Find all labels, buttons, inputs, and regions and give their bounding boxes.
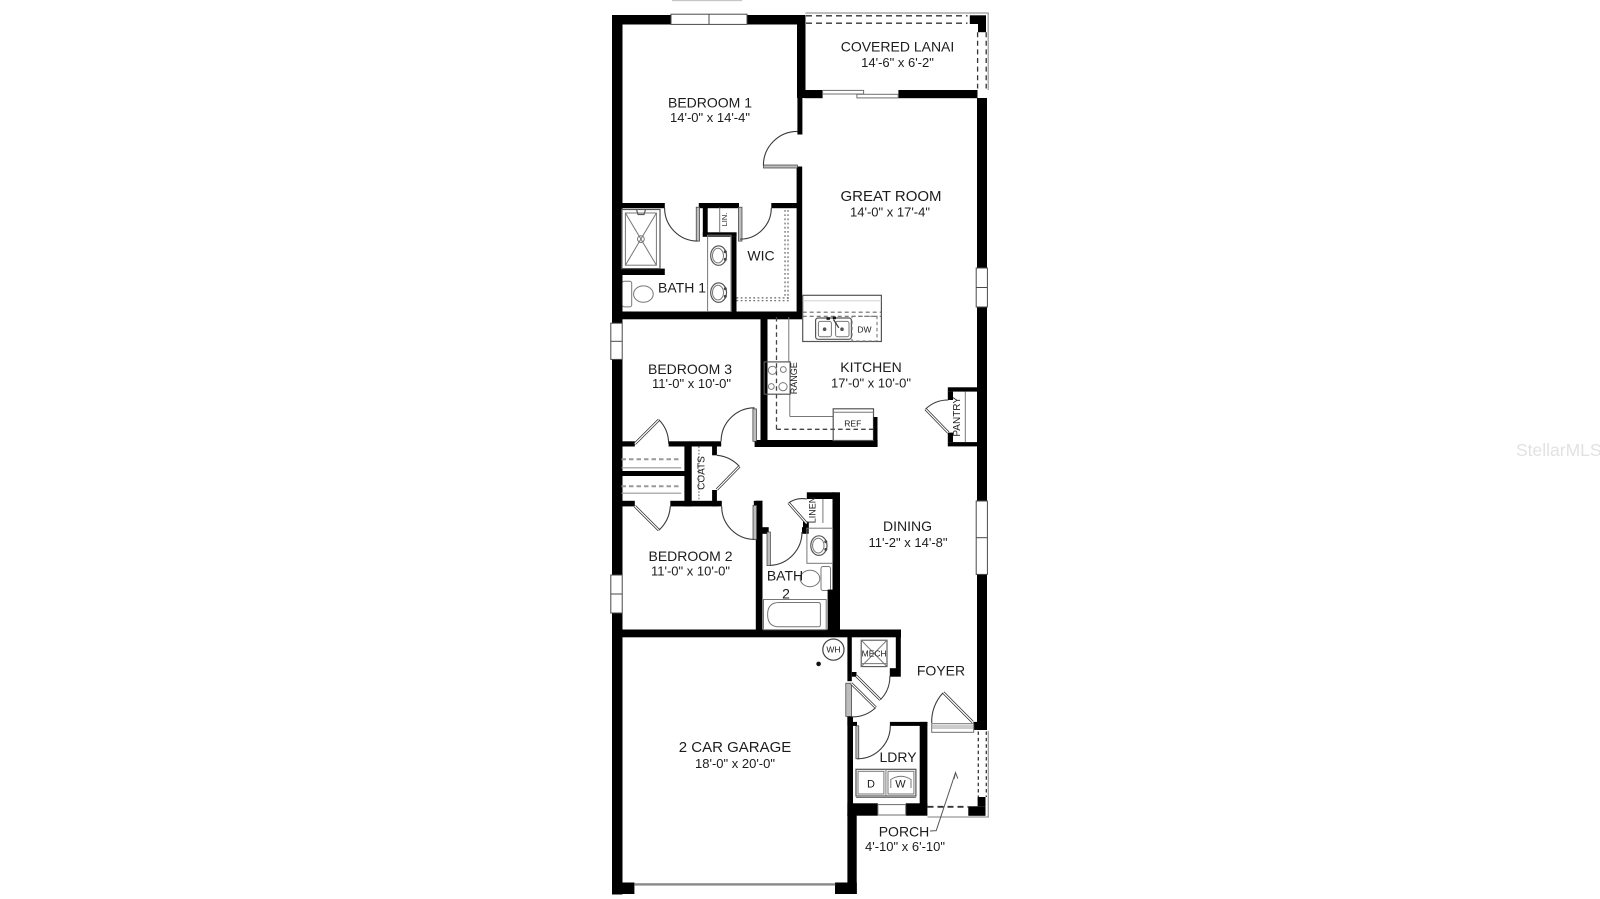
- svg-text:2 CAR GARAGE: 2 CAR GARAGE: [679, 739, 792, 756]
- svg-text:StellarMLS: StellarMLS: [1516, 440, 1600, 460]
- svg-text:2: 2: [782, 586, 790, 602]
- svg-text:17'-0" x 10'-0": 17'-0" x 10'-0": [831, 376, 911, 391]
- svg-text:4'-10" x 6'-10": 4'-10" x 6'-10": [865, 839, 945, 854]
- svg-text:RANGE: RANGE: [789, 362, 799, 394]
- svg-text:WIC: WIC: [747, 248, 774, 264]
- svg-text:BEDROOM 1: BEDROOM 1: [668, 95, 752, 111]
- svg-text:LINEN: LINEN: [808, 497, 818, 524]
- svg-text:MECH: MECH: [862, 649, 887, 659]
- svg-text:11'-2" x 14'-8": 11'-2" x 14'-8": [869, 535, 948, 550]
- svg-text:PANTRY: PANTRY: [952, 397, 963, 437]
- svg-text:14'-6" x 6'-2": 14'-6" x 6'-2": [861, 55, 934, 70]
- svg-text:BEDROOM 2: BEDROOM 2: [648, 548, 732, 564]
- svg-text:11'-0" x 10'-0": 11'-0" x 10'-0": [651, 564, 730, 579]
- svg-text:BATH 1: BATH 1: [658, 280, 706, 296]
- svg-text:14'-0" x 17'-4": 14'-0" x 17'-4": [850, 205, 930, 220]
- svg-text:W: W: [895, 779, 906, 791]
- svg-text:PORCH: PORCH: [879, 824, 930, 840]
- svg-text:14'-0" x 14'-4": 14'-0" x 14'-4": [670, 110, 750, 125]
- svg-text:WH: WH: [826, 645, 840, 655]
- svg-text:COVERED LANAI: COVERED LANAI: [841, 39, 955, 55]
- svg-text:LDRY: LDRY: [879, 749, 917, 765]
- svg-text:18'-0" x 20'-0": 18'-0" x 20'-0": [695, 756, 775, 771]
- svg-text:LIN.: LIN.: [720, 213, 729, 227]
- svg-text:BATH: BATH: [767, 568, 803, 584]
- svg-text:REF: REF: [844, 418, 861, 428]
- svg-text:11'-0" x 10'-0": 11'-0" x 10'-0": [652, 376, 731, 391]
- svg-text:BEDROOM 3: BEDROOM 3: [648, 361, 732, 377]
- svg-text:FOYER: FOYER: [917, 663, 965, 679]
- svg-text:DW: DW: [857, 324, 871, 334]
- svg-text:D: D: [867, 779, 875, 791]
- svg-text:COATS: COATS: [697, 456, 708, 490]
- svg-text:KITCHEN: KITCHEN: [840, 359, 901, 375]
- svg-text:DINING: DINING: [883, 518, 932, 534]
- svg-text:GREAT ROOM: GREAT ROOM: [840, 188, 941, 205]
